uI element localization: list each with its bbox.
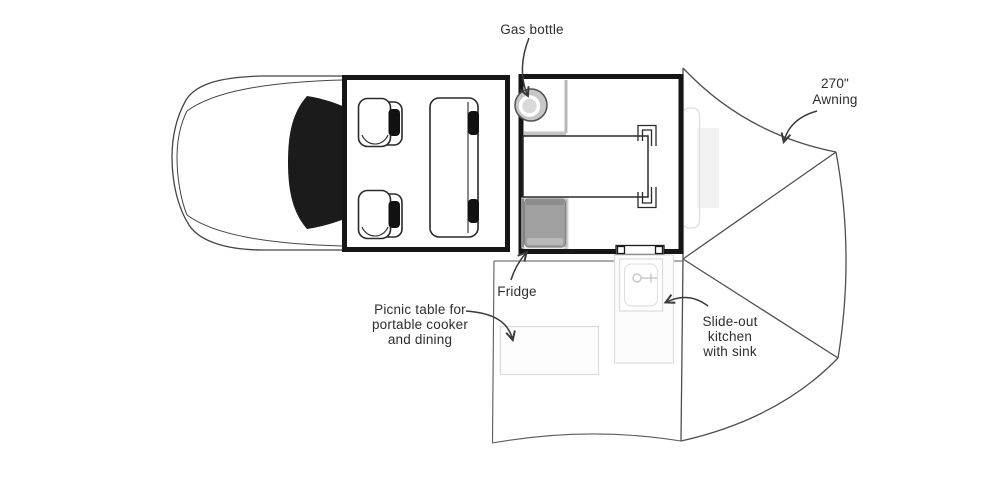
- picnic-table: [501, 327, 599, 375]
- cab: [345, 78, 508, 250]
- fridge-bottom-strip: [527, 238, 563, 245]
- bed-platform: [523, 126, 656, 208]
- door-panel: [697, 128, 719, 208]
- kitchen-hatch: [616, 246, 664, 255]
- floorplan-canvas: Gas bottle 270" Awning Fridge Picnic tab…: [0, 0, 1000, 500]
- bed-outline: [523, 136, 648, 197]
- annex-edge-bottom: [493, 434, 682, 443]
- fridge-top-strip: [526, 200, 564, 205]
- rear-bench-seat: [430, 98, 479, 237]
- awning-270: [681, 68, 846, 441]
- picnic-label-line3: and dining: [388, 332, 452, 347]
- gas-bottle-inner: [521, 97, 539, 115]
- bench-headrest-left: [468, 111, 479, 135]
- fridge: [525, 199, 566, 247]
- camper-box: [515, 77, 681, 255]
- passenger-seat: [359, 191, 403, 239]
- fridge-label: Fridge: [497, 284, 536, 299]
- bumper-inner-line: [177, 111, 187, 215]
- annex-edge-left: [493, 261, 495, 443]
- passenger-headrest: [389, 201, 401, 228]
- gas-bottle-label: Gas bottle: [500, 22, 564, 37]
- awning-label-line2: Awning: [812, 92, 857, 107]
- awning-label-line1: 270": [821, 76, 849, 91]
- picnic-label-line1: Picnic table for: [374, 302, 466, 317]
- kitchen-label-line1: Slide-out: [702, 314, 757, 329]
- picnic-label-line2: portable cooker: [372, 317, 468, 332]
- vehicle-front: [172, 76, 359, 250]
- hatch-end-right: [656, 247, 663, 254]
- awning-edge-bottom: [681, 358, 838, 441]
- gas-bottle: [515, 89, 547, 121]
- hatch-end-left: [618, 247, 625, 254]
- bench-headrest-right: [468, 199, 479, 223]
- awning-arrow: [784, 111, 817, 141]
- awning-spoke-bottom: [681, 259, 683, 441]
- kitchen-label-line2: kitchen: [708, 329, 752, 344]
- slide-out-kitchen: [615, 255, 674, 363]
- floorplan-diagram: Gas bottle 270" Awning Fridge Picnic tab…: [0, 0, 1000, 500]
- driver-headrest: [389, 109, 401, 136]
- fridge-arrow: [511, 253, 526, 280]
- driver-seat: [359, 99, 403, 147]
- entry-door-outline: [683, 108, 700, 228]
- awning-edge-right: [836, 152, 846, 358]
- kitchen-label-line3: with sink: [702, 344, 757, 359]
